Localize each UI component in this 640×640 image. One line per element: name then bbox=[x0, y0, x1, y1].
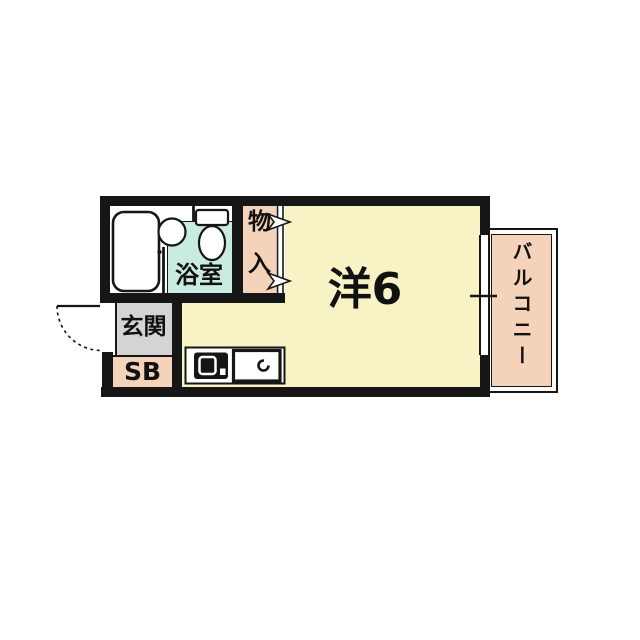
wall bbox=[101, 387, 490, 397]
floor-plan: 洋6 浴室 物 入 玄関 SB バルコニー bbox=[0, 0, 640, 640]
main-room-label: 洋6 bbox=[303, 266, 427, 314]
wall bbox=[102, 352, 113, 397]
bathroom-label: 浴室 bbox=[166, 262, 232, 288]
wall bbox=[480, 196, 490, 235]
door-swing-icon bbox=[57, 306, 101, 351]
entrance-label: 玄関 bbox=[115, 315, 172, 340]
closet-label-top: 物 bbox=[243, 210, 276, 235]
balcony-label: バルコニー bbox=[510, 241, 532, 389]
closet-label-bottom: 入 bbox=[243, 252, 276, 277]
wall bbox=[100, 196, 110, 303]
main-room-area-lower bbox=[182, 303, 286, 387]
wall bbox=[480, 355, 490, 397]
shoe-box-label: SB bbox=[113, 358, 172, 386]
wall bbox=[100, 196, 490, 206]
sliding-window bbox=[479, 235, 490, 355]
wall bbox=[232, 206, 243, 303]
wall bbox=[100, 293, 285, 303]
wall bbox=[172, 303, 182, 387]
